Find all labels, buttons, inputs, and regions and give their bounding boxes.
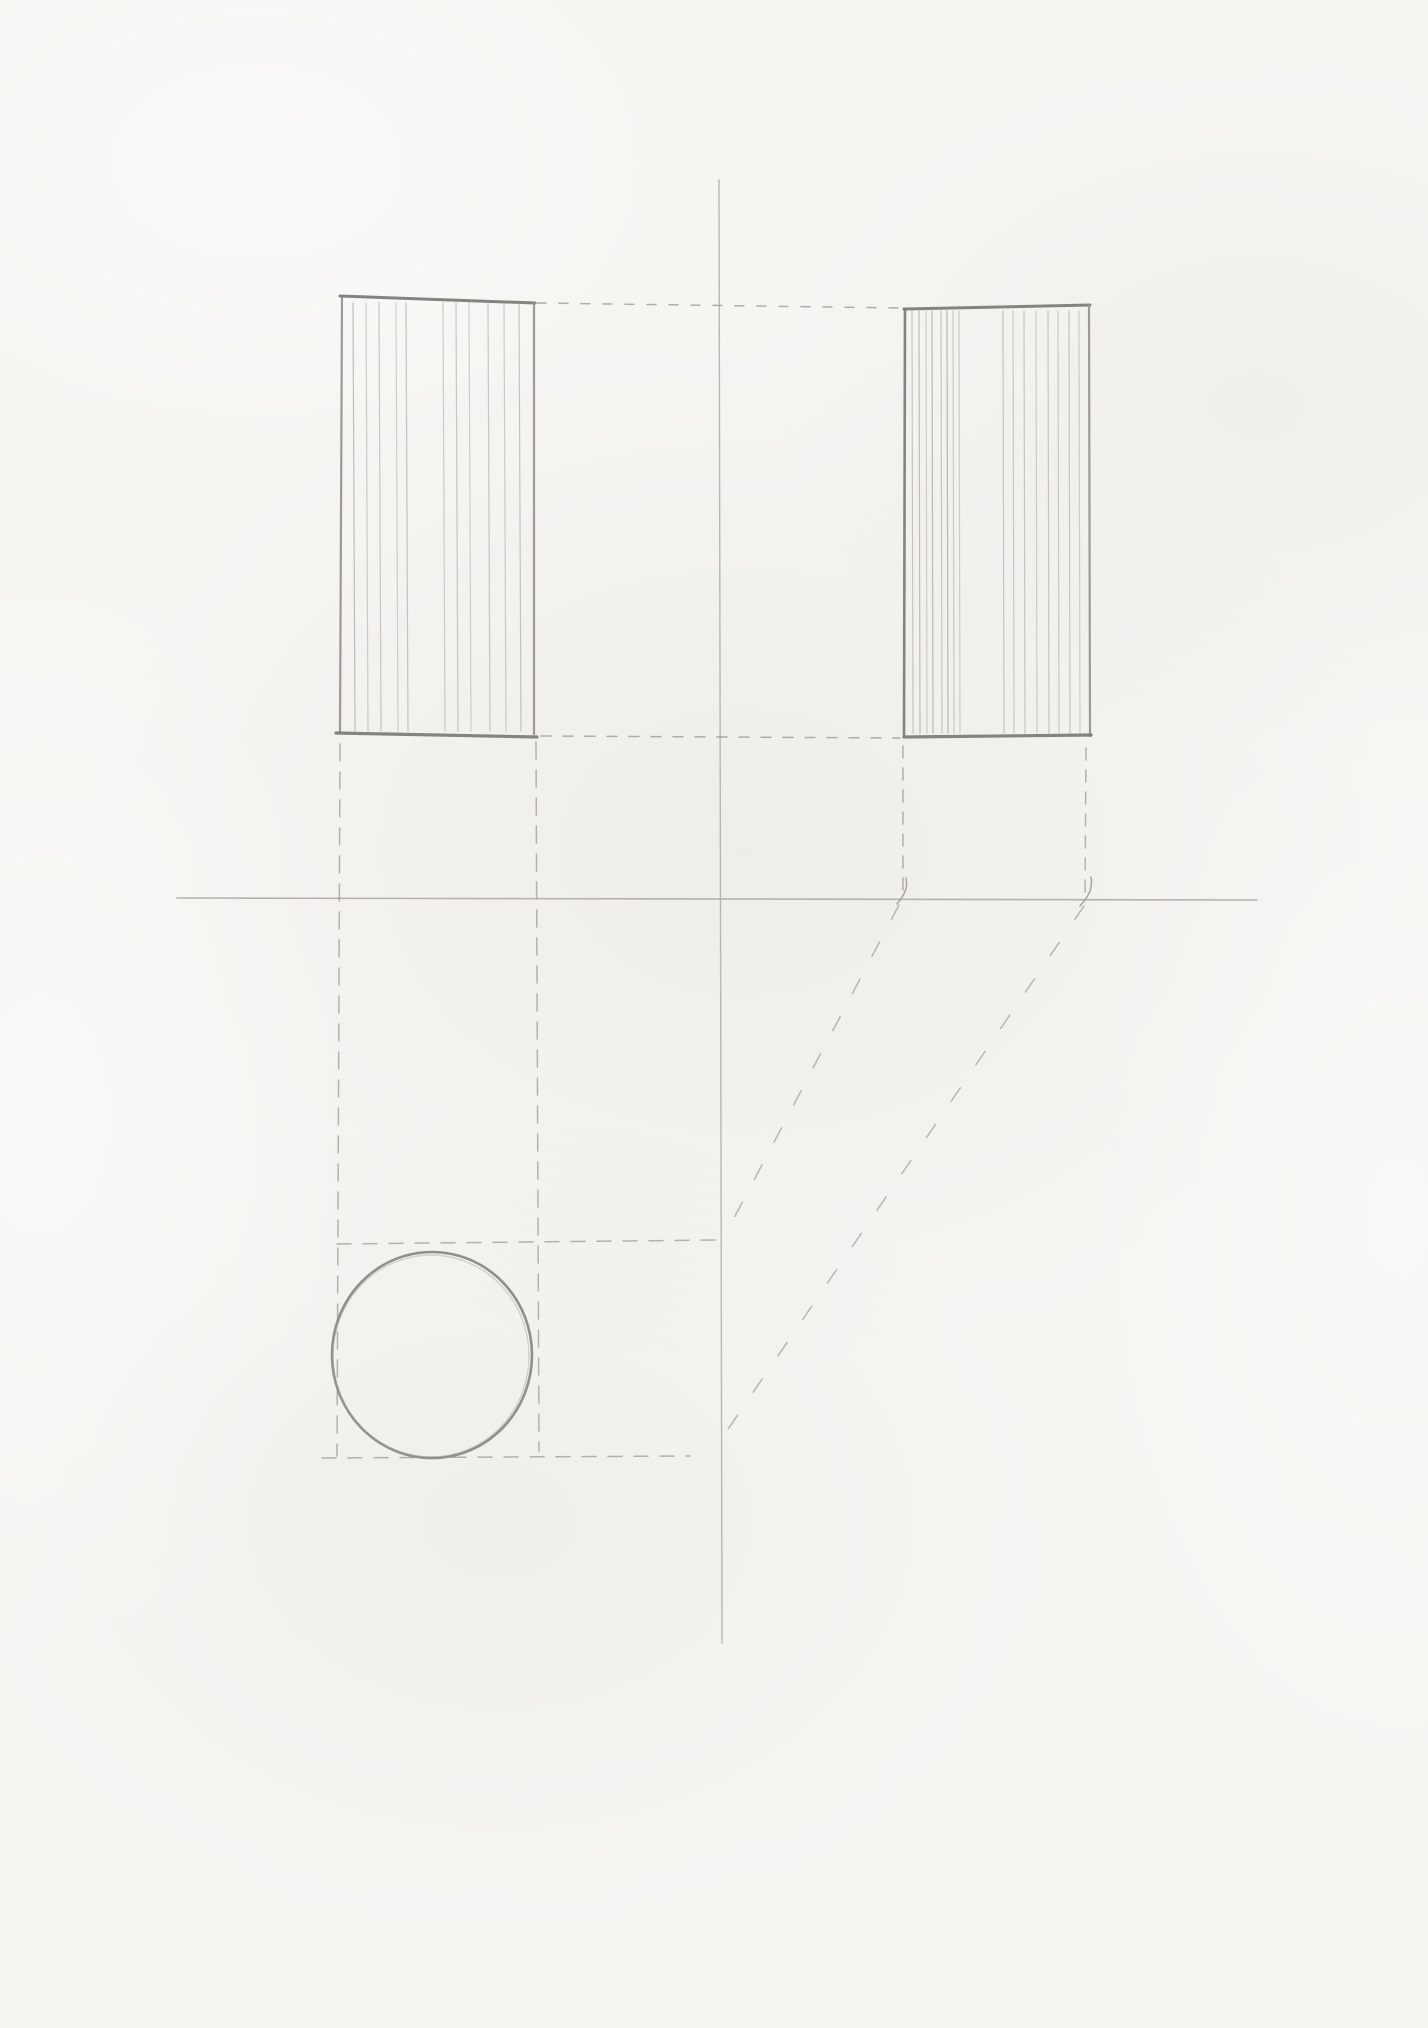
- front-view-hatch-line: [443, 303, 445, 731]
- side-view-hatch-line: [919, 311, 920, 733]
- side-view-hatch-line: [926, 311, 927, 733]
- paper-speck: [247, 921, 250, 924]
- front-view-edge-top: [340, 296, 535, 303]
- side-view-hatch-line: [953, 311, 954, 733]
- projection-line-front-right-down: [536, 742, 539, 1451]
- side-view-hatch-line: [1003, 311, 1004, 733]
- side-view-hatch-line: [941, 311, 942, 733]
- side-view-edge-left: [904, 309, 905, 737]
- paper-speck: [878, 1034, 880, 1036]
- top-view-circle-overdraw: [333, 1255, 529, 1457]
- side-view-hatch-line: [947, 311, 948, 733]
- side-view-hatch-line: [1024, 311, 1025, 733]
- front-view-edge-bottom: [336, 733, 537, 737]
- projection-line-bottom-connector: [541, 736, 900, 738]
- projection-line-front-left-down: [337, 744, 340, 1456]
- transfer-line-diagonal-left: [724, 905, 899, 1237]
- front-view-hatch-line: [406, 303, 408, 731]
- side-view-edge-top: [904, 305, 1090, 309]
- projection-line-top-tangent: [337, 1240, 717, 1244]
- front-view-hatch-line: [396, 303, 398, 731]
- side-view-hatch-line: [1069, 311, 1070, 733]
- vertical-axis-line: [719, 180, 722, 1643]
- side-view-hatch-line: [1058, 311, 1059, 733]
- side-view-hatch-line: [912, 311, 913, 733]
- side-view-hatch-line: [1048, 311, 1049, 733]
- front-view-hatch-line: [504, 303, 506, 731]
- front-view-hatch-line: [469, 303, 471, 731]
- side-view-edge-right: [1089, 305, 1090, 736]
- photographed-paper-sheet: [0, 0, 1428, 2028]
- projection-line-side-right-down: [1085, 748, 1086, 896]
- front-view-hatch-line: [366, 303, 368, 731]
- transfer-line-diagonal-right: [720, 906, 1084, 1441]
- side-view-hatch-line: [959, 311, 960, 733]
- paper-speck: [731, 237, 734, 240]
- front-view-hatch-line: [456, 303, 458, 731]
- side-view-hatch-line: [932, 311, 933, 733]
- side-view-hatch-line: [1013, 311, 1014, 733]
- paper-speck: [401, 1348, 403, 1350]
- front-view-hatch-line: [379, 303, 381, 731]
- front-view-hatch-line: [353, 303, 355, 731]
- front-view-edge-left: [340, 297, 342, 733]
- side-view-hatch-line: [1079, 311, 1080, 733]
- side-view-edge-bottom: [904, 735, 1091, 737]
- front-view-hatch-line: [488, 303, 490, 731]
- projection-line-bottom-tangent: [322, 1456, 690, 1458]
- top-view-center-mark: [431, 1354, 435, 1358]
- orthographic-projection-drawing: [0, 0, 1428, 2028]
- side-view-hatch-line: [1036, 311, 1037, 733]
- front-view-hatch-line: [519, 303, 521, 731]
